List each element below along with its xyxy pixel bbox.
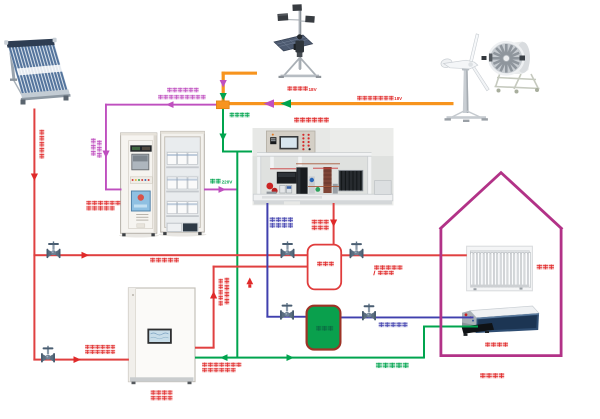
svg-text:18V: 18V: [394, 96, 402, 101]
svg-text:18V: 18V: [309, 87, 318, 92]
svg-text:220V: 220V: [222, 180, 234, 185]
